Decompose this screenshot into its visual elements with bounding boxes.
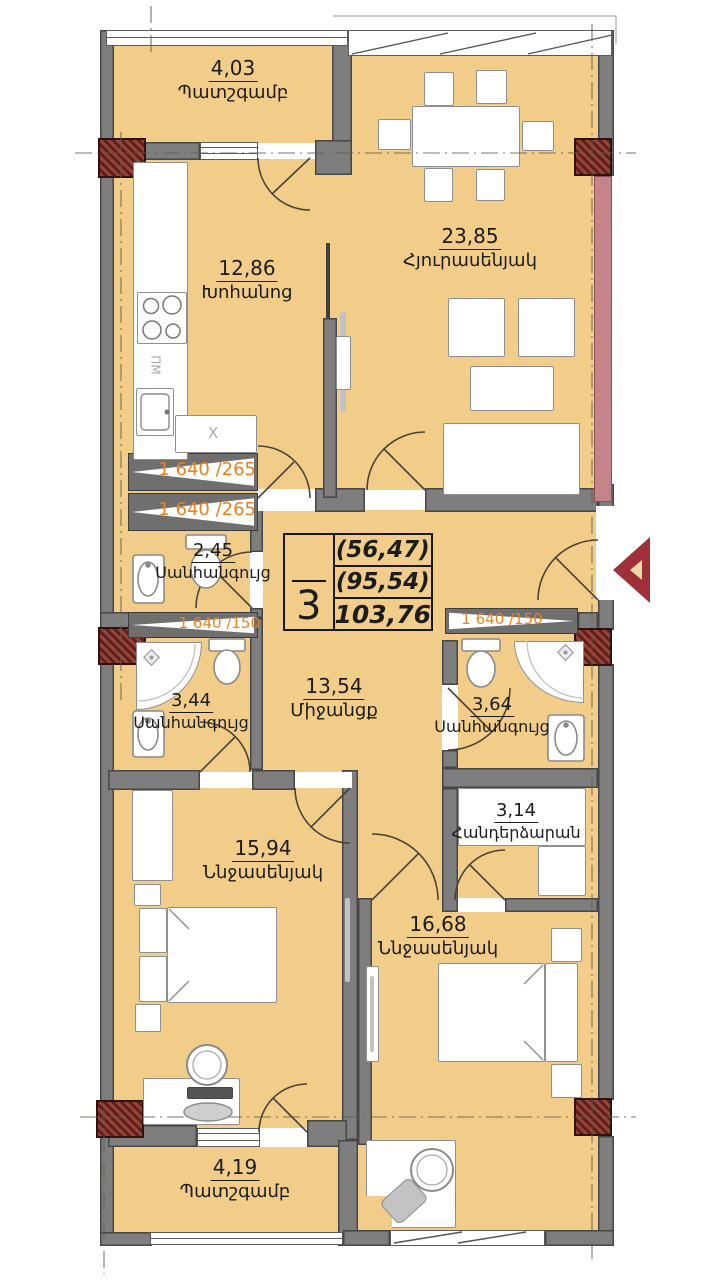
room-area: 3,64 [434, 694, 549, 715]
dining-chair [424, 168, 453, 202]
room-name: Հյուրասենյակ [403, 250, 537, 271]
total-area-value: 103,76 [335, 599, 431, 629]
wall [108, 770, 200, 790]
wall [598, 664, 614, 1100]
room-name: Հանդերձարան [451, 823, 580, 842]
window [150, 1232, 343, 1245]
window [200, 142, 258, 160]
door-opening [365, 490, 425, 510]
room-name: Ննջասենյակ [203, 862, 323, 883]
shelf [134, 884, 161, 906]
door-opening [295, 772, 352, 788]
room-name: Պատշգամբ [180, 1181, 291, 1202]
dining-chair [424, 72, 454, 106]
rooms-count-cell: 3 [285, 535, 335, 629]
room-label-balcony-top: 4,03 Պատշգամբ [178, 56, 289, 103]
room-name: Խոհանոց [201, 282, 292, 303]
room-area: 3,44 [133, 690, 248, 711]
room-name: Ննջասենյակ [378, 938, 498, 959]
nightstand [139, 956, 167, 1002]
area-value: (95,54) [335, 567, 431, 599]
wardrobe [132, 790, 173, 881]
room-label-corridor: 13,54 Միջանցք [290, 674, 378, 721]
room-area: 13,54 [290, 674, 378, 698]
bed-headboard [545, 963, 578, 1062]
desk [143, 1078, 240, 1125]
bed [167, 907, 277, 1003]
room-name: Սանհանգույց [434, 717, 549, 736]
door-opening [258, 143, 315, 159]
room-label-wc-left: 3,44 Սանհանգույց [133, 690, 248, 732]
wall [442, 750, 458, 768]
room-label-living: 23,85 Հյուրասենյակ [403, 224, 537, 271]
floor-plan: 1 640 /265 1 640 /265 1 640 /150 1 640 /… [0, 0, 720, 1280]
dining-table [412, 106, 520, 167]
apartment-info-box: 3 (56,47) (95,54) 103,76 [283, 533, 433, 631]
wardrobe [538, 846, 586, 896]
wall [442, 768, 598, 788]
dishwasher-label: ПМ [149, 355, 163, 374]
divider [292, 580, 326, 582]
mirror-bar [370, 976, 374, 1052]
room-name: Միջանցք [290, 700, 378, 721]
room-name: Սանհանգույց [155, 563, 270, 582]
wall [100, 1232, 152, 1246]
window [197, 1128, 260, 1147]
bed [438, 963, 545, 1062]
room-label-wc-right: 3,64 Սանհանգույց [434, 694, 549, 736]
column [96, 1100, 144, 1138]
door-opening [458, 898, 505, 912]
room-area: 3,14 [451, 800, 580, 821]
room-label-wc-small: 2,45 Սանհանգույց [155, 540, 270, 582]
entrance-arrow-mark [630, 560, 642, 580]
glass-partition [326, 243, 330, 319]
dining-chair [476, 70, 507, 104]
tv [336, 336, 351, 390]
monitor [187, 1087, 233, 1099]
column [574, 138, 612, 176]
room-name: Սանհանգույց [133, 713, 248, 732]
sliding-door [345, 898, 350, 982]
room-area: 16,68 [378, 912, 498, 936]
door-opening [596, 506, 614, 600]
window [348, 30, 612, 56]
room-area: 4,03 [178, 56, 289, 80]
column [574, 1098, 612, 1136]
sofa [443, 423, 580, 495]
wall [343, 1230, 390, 1246]
window [390, 1230, 545, 1246]
beam-label: 1 640 /265 [140, 459, 256, 480]
room-label-balcony-bottom: 4,19 Պատշգամբ [180, 1155, 291, 1202]
wall [545, 1230, 614, 1246]
room-area: 4,19 [180, 1155, 291, 1179]
wall [323, 318, 337, 498]
dining-chair [522, 121, 554, 151]
wall [252, 770, 295, 790]
room-label-dressing: 3,14 Հանդերձարան [451, 800, 580, 842]
door-opening [200, 772, 252, 788]
coffee-table [470, 366, 554, 411]
window [106, 30, 348, 46]
door-opening [257, 489, 315, 511]
dining-chair [378, 119, 411, 150]
wall [442, 640, 458, 685]
wall [505, 898, 598, 912]
room-area: 23,85 [403, 224, 537, 248]
hood-label: X [208, 424, 218, 442]
room-name: Պատշգամբ [178, 82, 289, 103]
dining-chair [476, 169, 505, 201]
kitchen-sink [136, 388, 174, 436]
beam-label: 1 640 /150 [150, 614, 260, 632]
room-area: 12,86 [201, 256, 292, 280]
room-label-bedroom-left: 15,94 Ննջասենյակ [203, 836, 323, 883]
living-area-value: (56,47) [335, 535, 431, 567]
room-label-bedroom-right: 16,68 Ննջասենյակ [378, 912, 498, 959]
cabinet [135, 1004, 161, 1032]
beam-label: 1 640 /265 [140, 499, 256, 520]
beam-label: 1 640 /150 [452, 610, 552, 628]
rooms-count: 3 [296, 583, 321, 629]
wall [598, 598, 614, 630]
nightstand [551, 1064, 582, 1098]
armchair [518, 298, 575, 357]
room-area: 2,45 [155, 540, 270, 561]
armchair [448, 298, 505, 357]
wall [250, 618, 263, 770]
wall [315, 140, 352, 175]
room-area: 15,94 [203, 836, 323, 860]
facade-strip [594, 176, 612, 502]
door-opening [260, 1128, 307, 1147]
room-label-kitchen: 12,86 Խոհանոց [201, 256, 292, 303]
nightstand [551, 928, 582, 962]
stove [137, 292, 187, 344]
nightstand [139, 908, 167, 953]
